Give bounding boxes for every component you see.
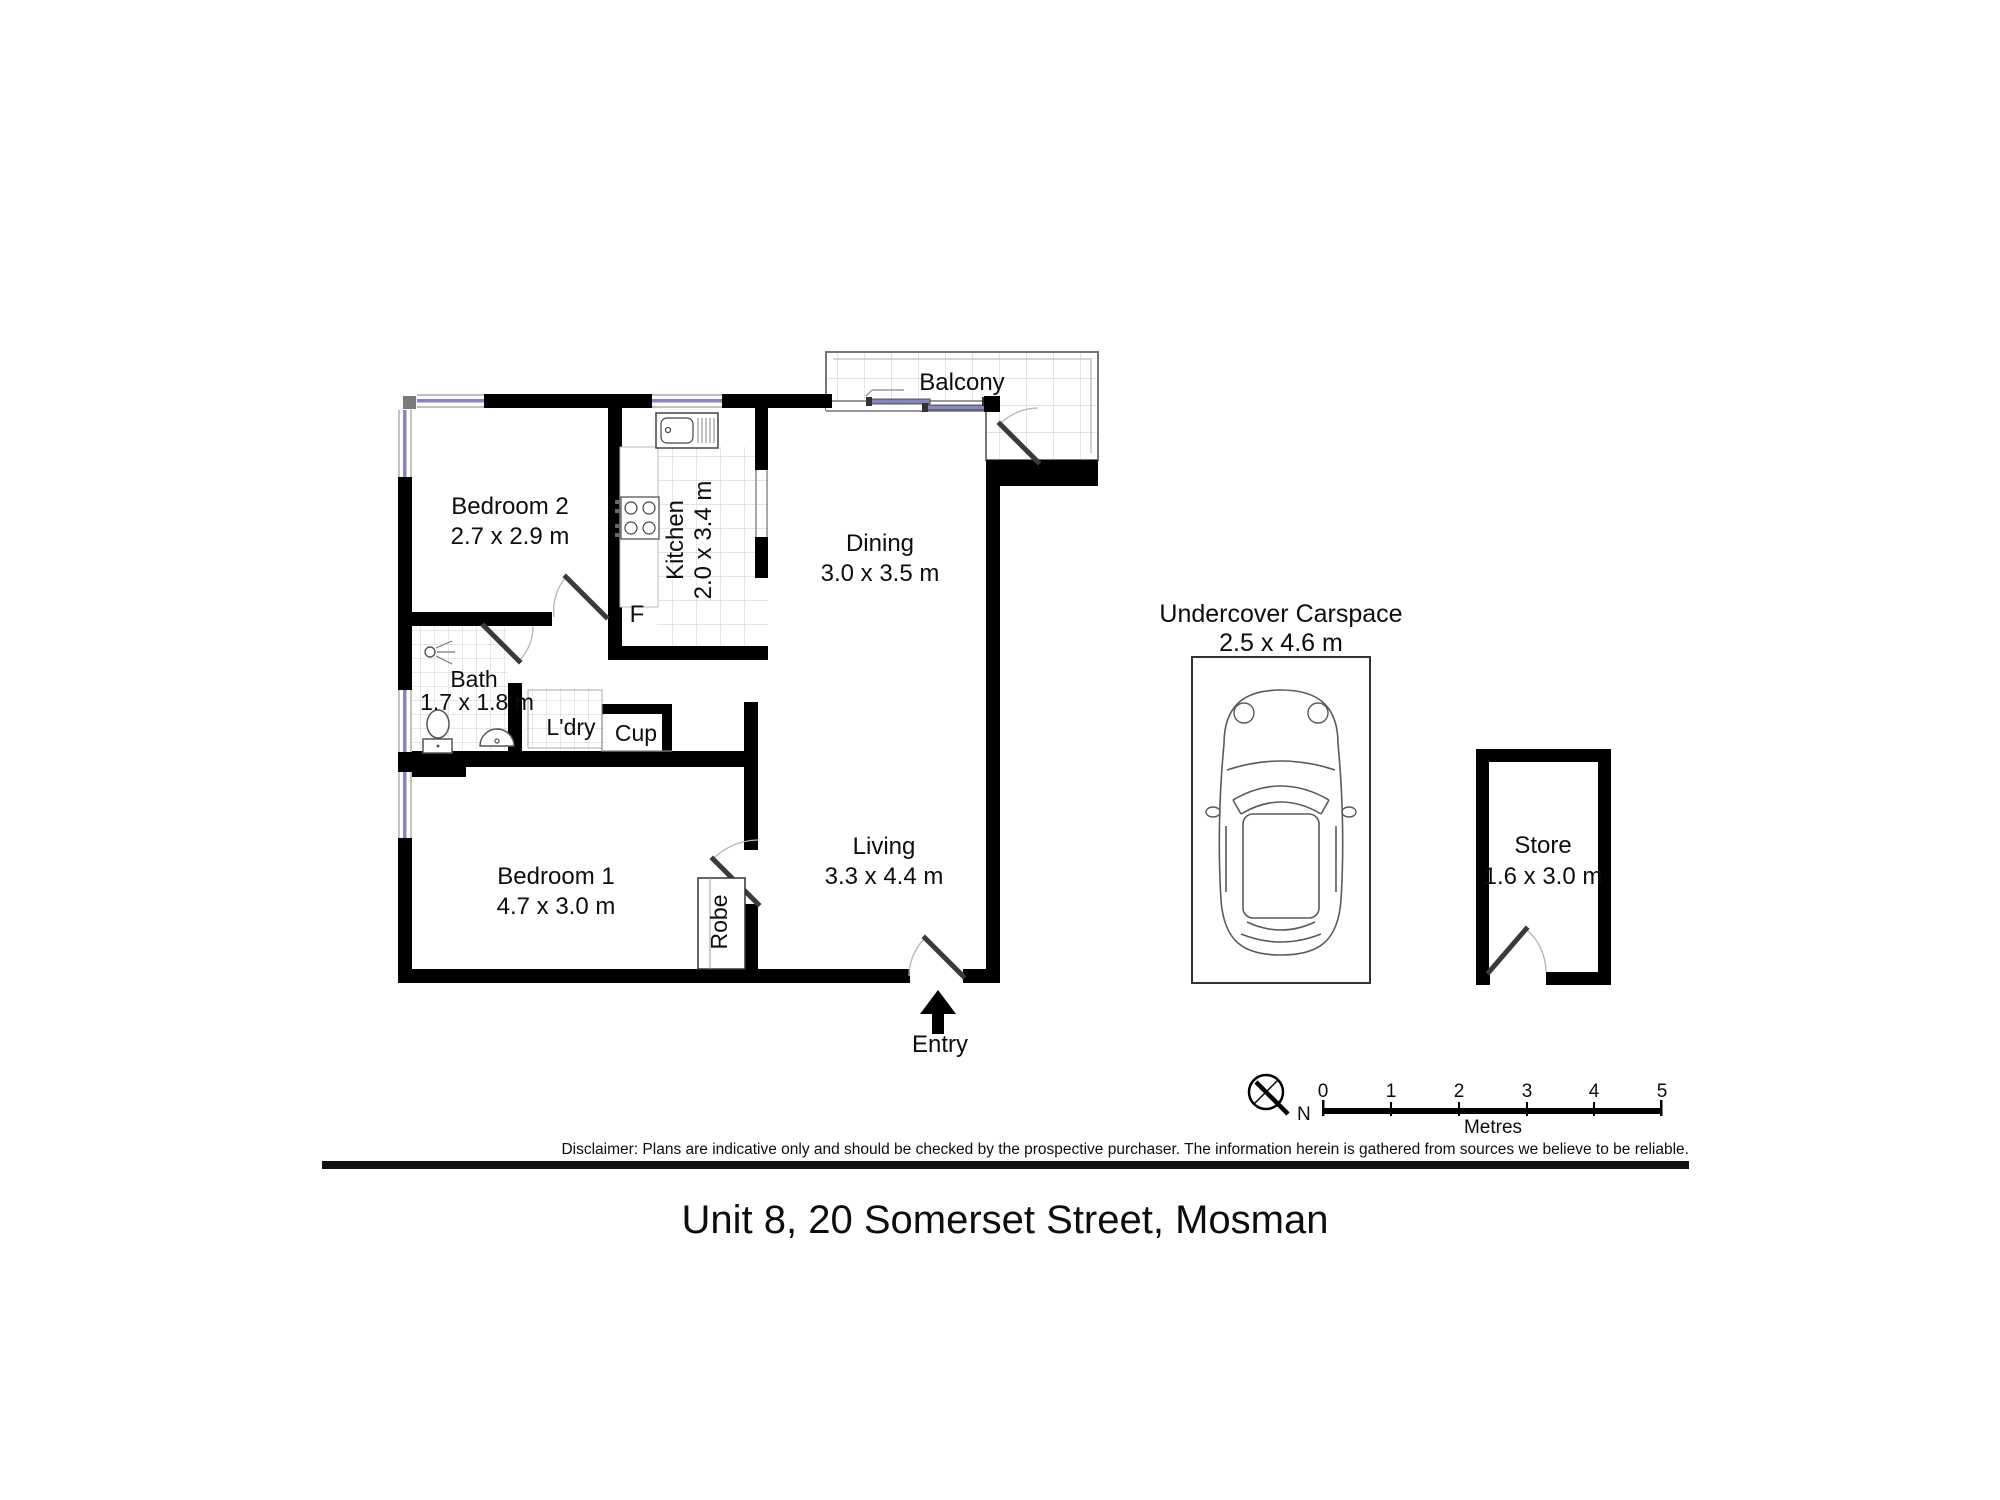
entry-marker: Entry bbox=[912, 990, 968, 1058]
compass-north-label: N bbox=[1297, 1104, 1311, 1125]
page-title: Unit 8, 20 Somerset Street, Mosman bbox=[682, 1198, 1329, 1242]
kitchen-dims: 2.0 x 3.4 m bbox=[690, 481, 717, 600]
window-bedroom2-side bbox=[398, 410, 412, 477]
sliding-door-cap bbox=[866, 397, 872, 406]
wall-corner-post bbox=[403, 396, 416, 409]
laundry-label: L'dry bbox=[546, 714, 596, 740]
dining-dims: 3.0 x 3.5 m bbox=[821, 560, 940, 587]
wall-kitchen-dining-lower bbox=[755, 537, 768, 578]
sliding-door-cap bbox=[922, 403, 928, 412]
window-bedroom2-top bbox=[417, 394, 484, 408]
wall-hall-bottom-step bbox=[406, 767, 466, 777]
wall-post bbox=[984, 396, 1000, 412]
wall-bath-top bbox=[412, 612, 552, 626]
bedroom1-dims: 4.7 x 3.0 m bbox=[497, 893, 616, 920]
wall-cupboard-top bbox=[602, 704, 672, 714]
scale-tick-label: 0 bbox=[1318, 1081, 1329, 1102]
wall-robe-side bbox=[744, 904, 758, 969]
store: Store 1.6 x 3.0 m bbox=[1476, 749, 1611, 985]
entry-label: Entry bbox=[912, 1031, 968, 1058]
living-dims: 3.3 x 4.4 m bbox=[825, 863, 944, 890]
fridge-label: F bbox=[630, 601, 645, 628]
wall-hall-living bbox=[744, 702, 758, 850]
scale-tick-label: 1 bbox=[1386, 1081, 1397, 1102]
car-icon bbox=[1206, 690, 1356, 955]
wall-cupboard-right bbox=[662, 704, 672, 751]
scale-bar: 0 1 2 3 4 5 Metres bbox=[1318, 1081, 1668, 1138]
scale-tick-label: 3 bbox=[1522, 1081, 1533, 1102]
carspace-label: Undercover Carspace bbox=[1159, 600, 1402, 628]
wall-left bbox=[398, 838, 412, 983]
floorplan-page: Balcony bbox=[0, 0, 2000, 1500]
cupboard-label: Cup bbox=[615, 720, 657, 746]
floorplan-drawing: Balcony bbox=[0, 0, 2000, 1500]
bedroom2-dims: 2.7 x 2.9 m bbox=[451, 523, 570, 550]
divider-rule bbox=[322, 1161, 1689, 1169]
door-bedroom2 bbox=[554, 577, 606, 617]
bath-dims: 1.7 x 1.8 m bbox=[420, 689, 534, 715]
wall-left bbox=[398, 477, 412, 690]
door-entry bbox=[909, 938, 963, 976]
scale-bar-line bbox=[1323, 1108, 1662, 1114]
sliding-door-panel bbox=[870, 399, 930, 404]
wall-hall-bottom bbox=[412, 751, 758, 767]
compass: N bbox=[1249, 1075, 1311, 1125]
window-bedroom1 bbox=[398, 772, 412, 838]
store-wall-bottom bbox=[1546, 972, 1611, 985]
disclaimer-text: Disclaimer: Plans are indicative only an… bbox=[561, 1141, 1689, 1158]
stove-icon bbox=[615, 497, 659, 539]
store-label: Store bbox=[1514, 832, 1571, 859]
kitchen-label: Kitchen bbox=[662, 500, 689, 580]
sliding-door-panel bbox=[926, 405, 986, 410]
bedroom2-label: Bedroom 2 bbox=[451, 493, 568, 520]
wall-bottom bbox=[963, 969, 1000, 983]
door-store bbox=[1489, 929, 1546, 972]
dining-label: Dining bbox=[846, 530, 914, 557]
bedroom1-label: Bedroom 1 bbox=[497, 863, 614, 890]
carspace-dims: 2.5 x 4.6 m bbox=[1219, 629, 1343, 657]
scale-tick-label: 2 bbox=[1454, 1081, 1465, 1102]
living-label: Living bbox=[853, 833, 916, 860]
wall-kitchen-dining-upper bbox=[755, 408, 768, 470]
wall-kitchen-bottom bbox=[608, 646, 768, 660]
wall-top bbox=[722, 394, 832, 408]
robe-label: Robe bbox=[706, 895, 732, 950]
store-dims: 1.6 x 3.0 m bbox=[1484, 863, 1603, 890]
store-wall-top bbox=[1476, 749, 1611, 762]
wall-bottom bbox=[398, 969, 910, 983]
wall-right bbox=[986, 460, 1000, 983]
entry-arrow-icon bbox=[920, 990, 956, 1034]
balcony-label: Balcony bbox=[919, 369, 1004, 396]
balcony: Balcony bbox=[826, 352, 1098, 460]
carspace: Undercover Carspace 2.5 x 4.6 m bbox=[1159, 600, 1402, 983]
wall-balcony-return bbox=[986, 460, 1098, 486]
scale-tick-label: 4 bbox=[1589, 1081, 1600, 1102]
wall-top bbox=[484, 394, 652, 408]
window-bath bbox=[398, 690, 412, 752]
scale-tick-label: 5 bbox=[1657, 1081, 1668, 1102]
kitchen-sink-icon bbox=[656, 413, 718, 448]
window-kitchen bbox=[652, 394, 722, 408]
scale-unit-label: Metres bbox=[1464, 1117, 1522, 1138]
